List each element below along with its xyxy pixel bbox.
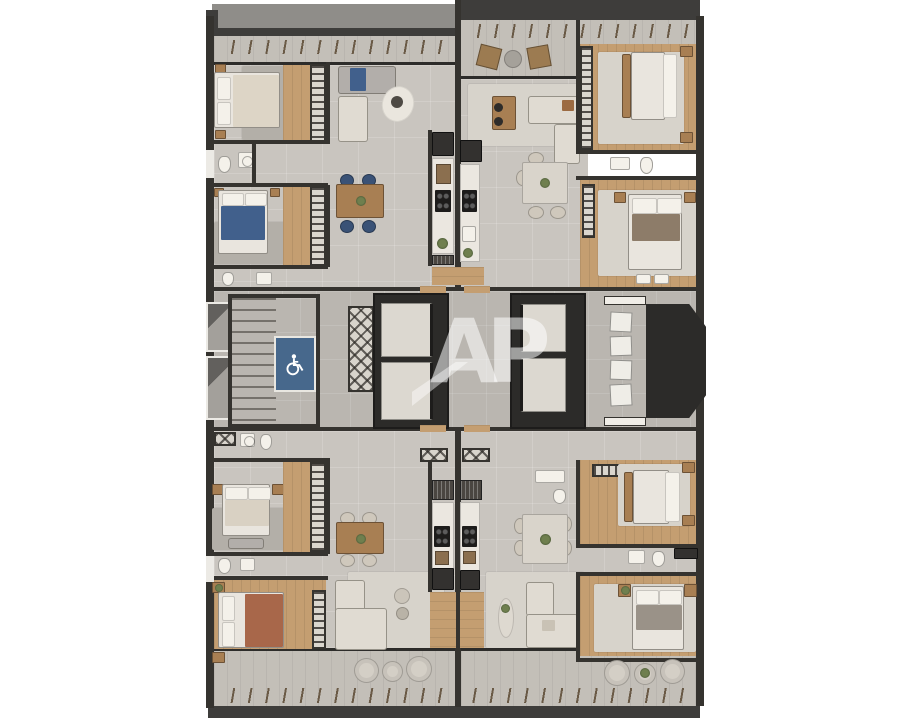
wardrobe [312, 590, 326, 649]
throw-pillow [562, 100, 574, 111]
wardrobe [582, 184, 595, 238]
vent-grille [460, 480, 482, 500]
lounge-chair [526, 44, 551, 69]
dining-chair [550, 206, 566, 219]
sink [610, 157, 630, 170]
window [206, 150, 214, 178]
outdoor-table [504, 50, 522, 68]
wardrobe [310, 186, 326, 266]
chaise [338, 96, 368, 142]
nightstand [680, 132, 693, 143]
toilet [218, 558, 231, 574]
wardrobe [310, 64, 326, 142]
cooktop [462, 526, 477, 547]
washing-machine [240, 433, 255, 447]
nightstand [684, 584, 697, 597]
refrigerator [460, 140, 482, 162]
stool [494, 117, 503, 126]
floor-plan: AP [198, 0, 712, 718]
refrigerator [432, 568, 454, 590]
entry-threshold [432, 267, 484, 285]
wall [326, 458, 330, 554]
cooktop [462, 190, 477, 212]
refrigerator [432, 132, 454, 156]
ac-unit [610, 336, 633, 357]
toilet [218, 156, 231, 173]
bed [631, 52, 665, 120]
kitchen-sink [436, 164, 451, 184]
service-shaft [348, 306, 374, 392]
kitchen-counter [460, 164, 480, 262]
louver-slats [464, 24, 696, 38]
bed [632, 586, 684, 650]
bed-bench [624, 472, 633, 522]
balcony-pouf [382, 661, 403, 682]
balcony-pouf [354, 658, 379, 683]
plant [463, 248, 473, 258]
wall [214, 140, 328, 144]
wall [326, 185, 330, 267]
wall [326, 62, 330, 144]
bench-pouf [636, 274, 651, 284]
nightstand [270, 188, 280, 197]
bath-vanity [674, 548, 698, 559]
accessible-lift-platform [274, 336, 316, 392]
throw-blanket [350, 68, 366, 91]
ledge [604, 417, 646, 426]
vent-grille [432, 480, 454, 500]
nightstand [680, 46, 693, 57]
side-table [394, 588, 410, 604]
roof-band-left [212, 4, 456, 30]
roof-band-bottom [208, 706, 700, 718]
dining-chair [362, 554, 377, 567]
closet-floor [283, 187, 310, 265]
wall [576, 658, 700, 662]
toilet [260, 434, 272, 450]
closet-floor [283, 462, 310, 552]
kitchen-sink [462, 226, 476, 242]
wall [576, 150, 700, 154]
wardrobe [310, 462, 326, 552]
service-shaft [214, 432, 236, 446]
sink [628, 550, 645, 564]
cooktop [434, 526, 450, 547]
ledge [604, 296, 646, 305]
wall [214, 265, 328, 269]
roof-band-right [456, 0, 700, 20]
wall [214, 552, 328, 556]
plant [215, 584, 223, 592]
bed [218, 190, 268, 254]
wardrobe [580, 46, 593, 150]
throw-pillow [542, 620, 555, 631]
plant [356, 534, 366, 544]
kitchen-walkway [460, 592, 484, 648]
entry-threshold [464, 286, 490, 293]
nightstand [215, 130, 226, 139]
dining-chair [340, 554, 355, 567]
wall [252, 144, 256, 186]
service-shaft [420, 448, 448, 462]
plant [621, 586, 630, 595]
plant [501, 604, 510, 613]
balcony-pouf [660, 659, 685, 684]
nightstand [212, 652, 225, 663]
louver-slats [218, 40, 454, 54]
dining-chair [362, 220, 376, 233]
ac-unit [609, 383, 632, 406]
plant [437, 238, 448, 249]
cooktop [435, 190, 451, 212]
bed-bench [228, 538, 264, 549]
sink [240, 558, 255, 571]
nightstand [682, 462, 695, 473]
entry-threshold [420, 425, 446, 432]
chaise [526, 582, 554, 616]
dining-chair [528, 206, 544, 219]
side-table [391, 96, 403, 108]
technical-block [646, 304, 706, 418]
nightstand [682, 515, 695, 526]
kitchen-sink [435, 551, 449, 565]
ac-unit [610, 360, 633, 381]
bed [628, 194, 682, 270]
elevator [381, 303, 433, 357]
service-shaft [462, 448, 490, 462]
kitchen-walkway [430, 592, 456, 648]
entry-threshold [464, 425, 490, 432]
bed [214, 72, 280, 128]
vent-grille [432, 255, 454, 265]
side-table [396, 607, 409, 620]
nightstand [614, 192, 626, 203]
dining-chair [340, 220, 354, 233]
bed-pillows [665, 472, 680, 522]
balcony-pouf [406, 656, 432, 682]
toilet [640, 157, 653, 174]
hall-console [535, 470, 565, 483]
bed [222, 484, 270, 536]
closet-floor [283, 65, 310, 141]
floor-plan-image: AP [0, 0, 900, 720]
nightstand [684, 192, 696, 203]
bed [218, 592, 284, 648]
toilet [222, 272, 234, 286]
entry-threshold [420, 286, 446, 293]
window [206, 556, 214, 582]
plant [640, 668, 650, 678]
refrigerator [460, 570, 480, 590]
bed [633, 470, 669, 524]
core-wall-top [206, 287, 700, 291]
balcony-pouf [604, 660, 630, 686]
bed-pillows [663, 54, 677, 118]
bed-bench [622, 54, 631, 118]
roof-eave-left [212, 28, 456, 36]
plant [356, 196, 366, 206]
plant [540, 534, 551, 545]
wheelchair-icon [282, 351, 308, 377]
plant [540, 178, 550, 188]
bench-pouf [654, 274, 669, 284]
ac-unit [609, 311, 632, 332]
kitchen-sink [463, 551, 476, 564]
sink [256, 272, 272, 285]
watermark-logo: AP [430, 308, 539, 396]
stool [494, 103, 503, 112]
toilet [652, 551, 665, 567]
toilet [553, 489, 566, 504]
sofa [335, 608, 387, 650]
staircase [232, 298, 276, 424]
